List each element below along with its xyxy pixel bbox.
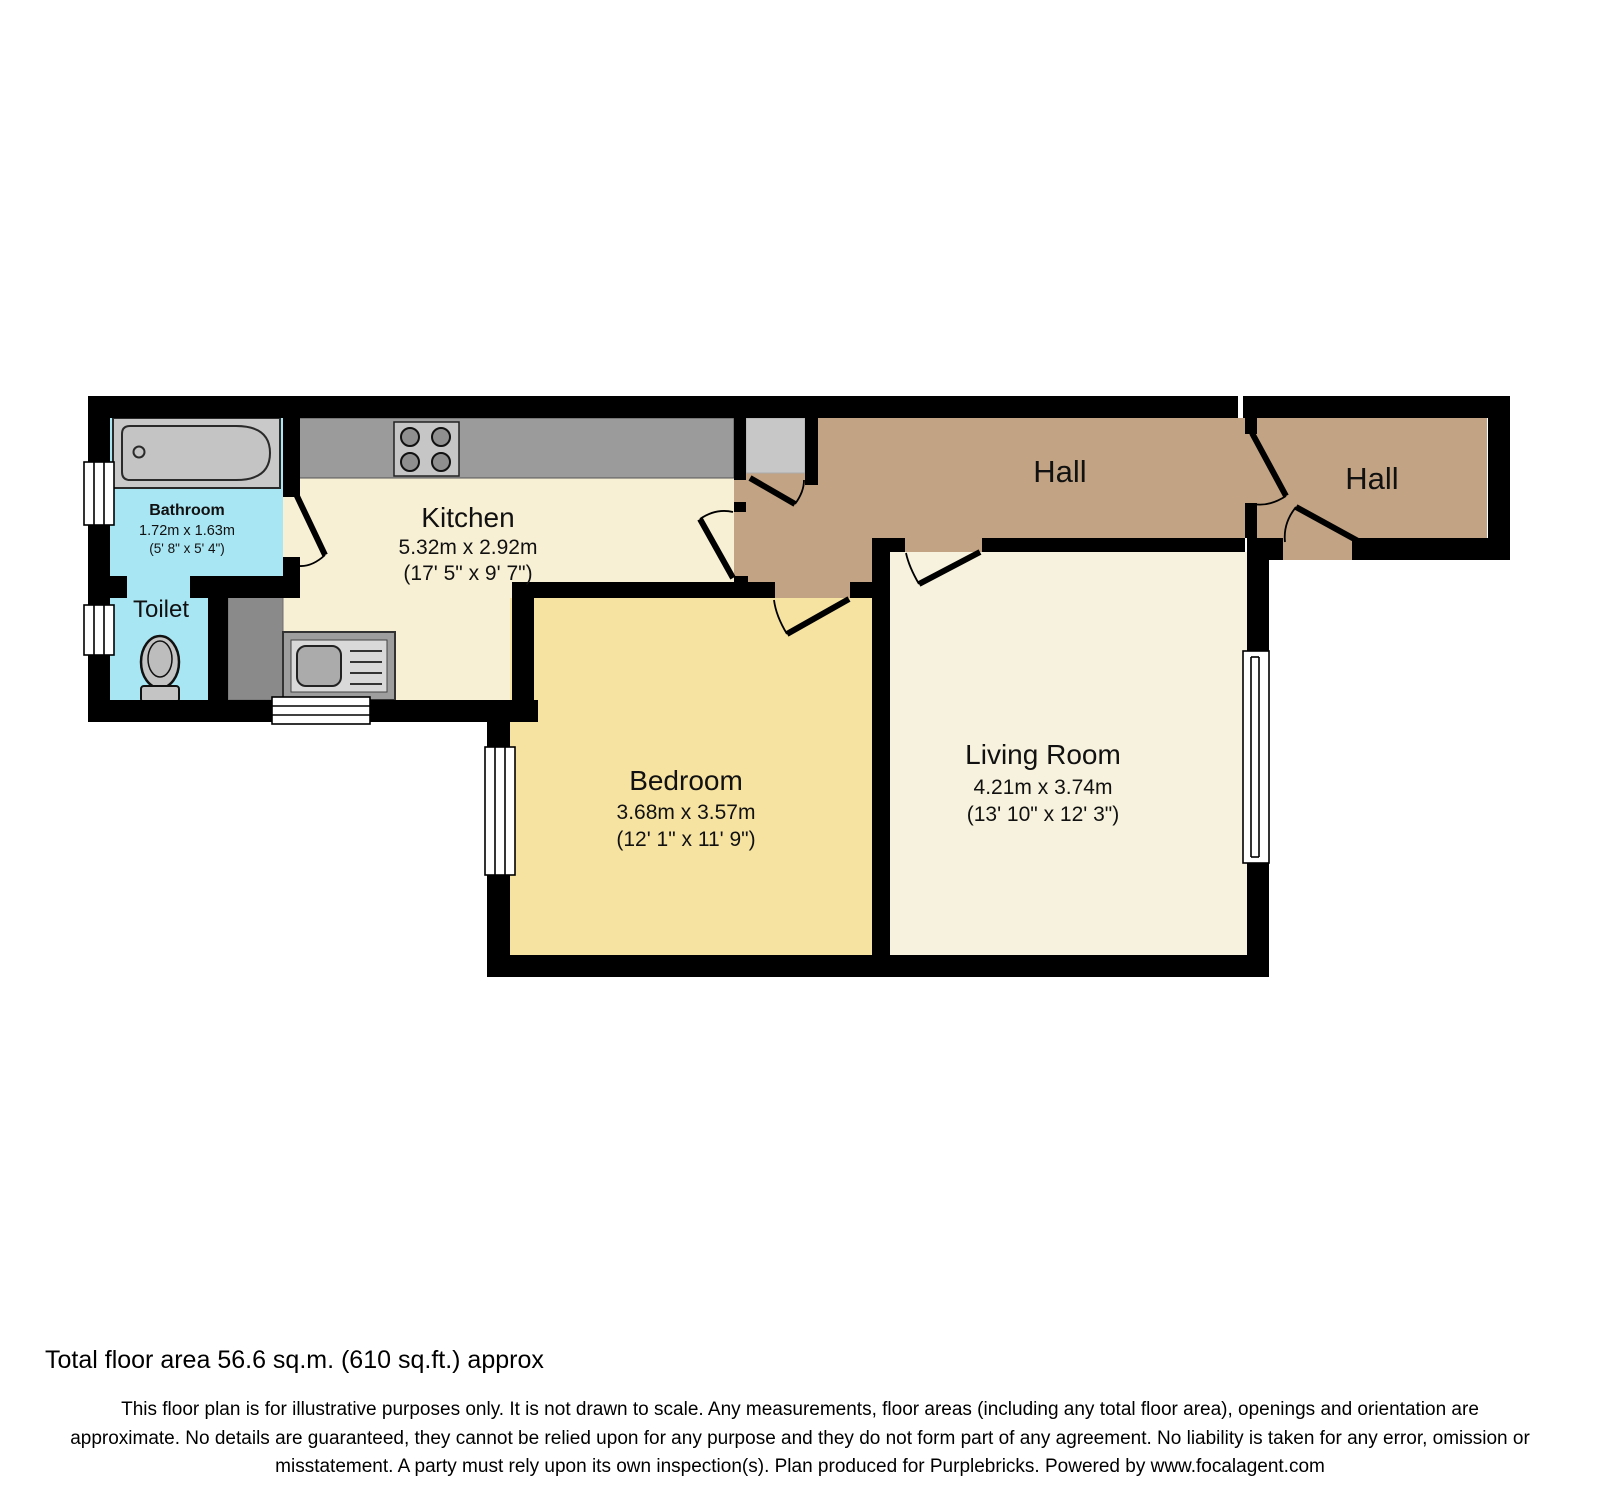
kitchen-dims-m: 5.32m x 2.92m	[399, 536, 538, 559]
total-floor-area: Total floor area 56.6 sq.m. (610 sq.ft.)…	[45, 1346, 544, 1375]
kitchen-unit-dark	[228, 597, 283, 700]
toilet-label: Toilet	[133, 596, 189, 623]
disclaimer-text: This floor plan is for illustrative purp…	[65, 1396, 1535, 1482]
hall-main-label: Hall	[1033, 454, 1086, 489]
wall-break	[1238, 396, 1243, 418]
floor-plan: Bathroom 1.72m x 1.63m (5' 8" x 5' 4") T…	[0, 0, 1600, 1010]
kitchen-dims-ft: (17' 5" x 9' 7")	[403, 562, 532, 585]
bedroom-window	[485, 747, 515, 875]
stove-icon	[394, 422, 459, 476]
bedroom-dims-m: 3.68m x 3.57m	[617, 801, 756, 824]
kitchen-window	[272, 697, 370, 724]
kitchen-counter	[297, 418, 734, 478]
living-room-window	[1243, 651, 1269, 863]
bathroom-window	[84, 462, 114, 525]
bedroom-label: Bedroom	[629, 765, 743, 796]
floor-plan-page: Bathroom 1.72m x 1.63m (5' 8" x 5' 4") T…	[0, 0, 1600, 1501]
living-room-dims-m: 4.21m x 3.74m	[974, 776, 1113, 799]
living-room-dims-ft: (13' 10" x 12' 3")	[967, 803, 1120, 826]
hall-cupboard	[746, 418, 805, 473]
bathroom-label: Bathroom	[149, 502, 225, 519]
living-room-label: Living Room	[965, 739, 1121, 770]
bathroom-dims-ft: (5' 8" x 5' 4")	[149, 541, 225, 556]
toilet-window	[84, 605, 114, 655]
toilet-icon	[141, 636, 179, 702]
kitchen-label: Kitchen	[421, 502, 514, 533]
bathroom-dims-m: 1.72m x 1.63m	[139, 523, 235, 539]
bathtub-icon	[113, 418, 280, 488]
bedroom-dims-ft: (12' 1" x 11' 9")	[616, 828, 755, 851]
sink-icon	[283, 632, 395, 700]
hall-entry-label: Hall	[1345, 461, 1398, 496]
